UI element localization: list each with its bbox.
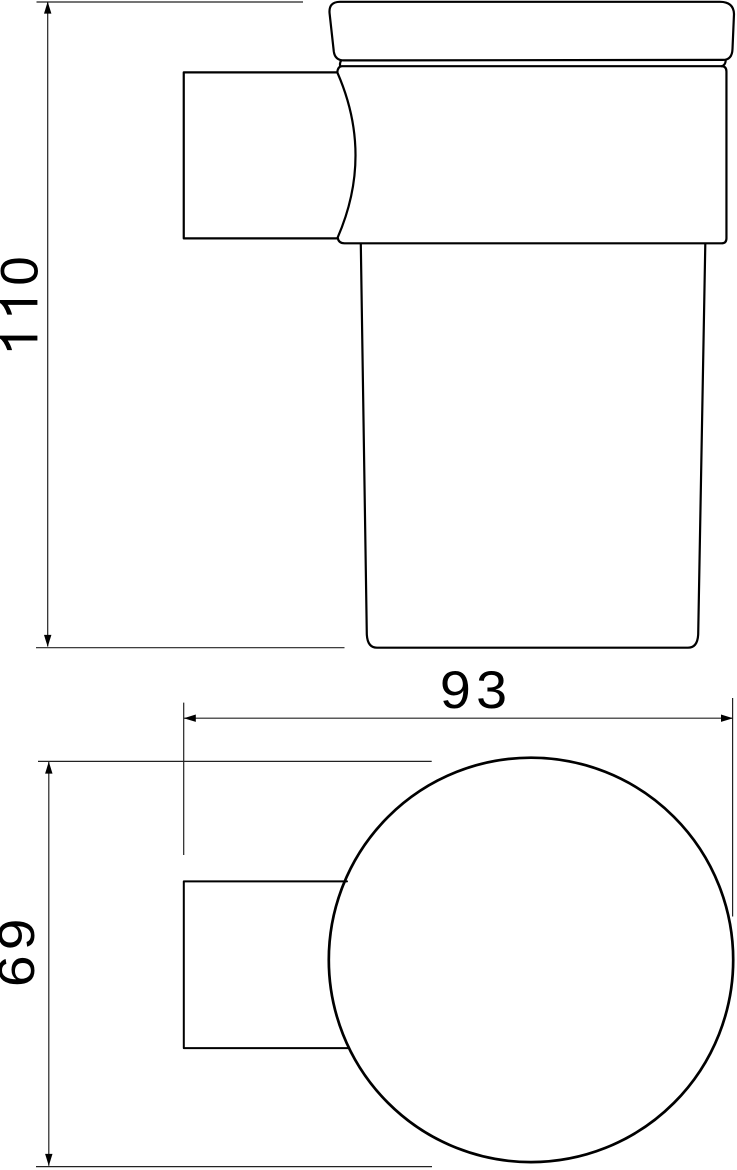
svg-text:93: 93 — [440, 660, 512, 719]
svg-text:0: 0 — [0, 256, 49, 285]
svg-text:69: 69 — [0, 914, 46, 988]
